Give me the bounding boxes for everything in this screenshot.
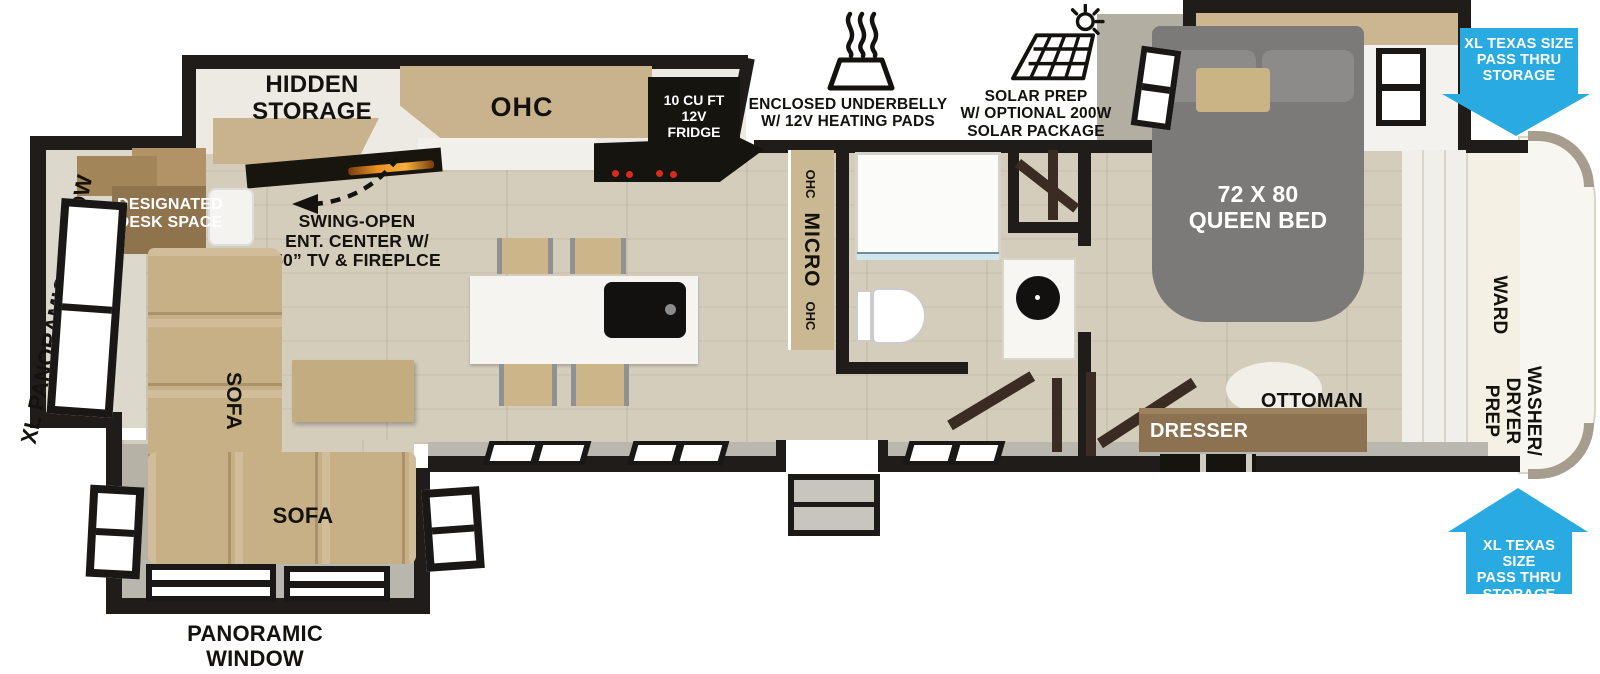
sofa-slide-window-right — [421, 486, 485, 572]
hall-door — [1052, 378, 1062, 452]
shower — [855, 152, 1001, 260]
sofa-slide-window-left — [86, 485, 145, 580]
rv-floorplan: 10 CU FT 12V FRIDGE OHC MICRO OHC HIDDEN… — [0, 0, 1600, 674]
front-cap-trim-top — [1528, 131, 1594, 187]
window-mullion — [1382, 84, 1420, 91]
b ottom-wall-window — [627, 441, 730, 465]
window-pane — [956, 445, 999, 461]
underbelly-label: ENCLOSED UNDERBELLY W/ 12V HEATING PADS — [748, 96, 948, 131]
window-pane — [909, 445, 952, 461]
window-pane — [539, 445, 584, 461]
coffee-table — [292, 360, 414, 422]
micro-cabinet-label: OHC MICRO OHC — [791, 150, 831, 350]
bar-stool — [497, 238, 553, 274]
panoramic-window-label: PANORAMIC WINDOW — [165, 622, 345, 671]
wall-bath-bottom — [836, 362, 968, 374]
ohc-label: OHC — [804, 170, 819, 199]
bedroom-steps — [1160, 454, 1256, 472]
pass-thru-label-bottom: XL TEXAS SIZE PASS THRU STORAGE — [1466, 538, 1572, 603]
wall-closet-horizontal — [1008, 222, 1091, 233]
entry-door-jamb-right — [878, 440, 888, 472]
bedroom-door — [1086, 372, 1096, 456]
pass-thru-label-top: XL TEXAS SIZE PASS THRU STORAGE — [1460, 36, 1578, 85]
window-pane — [490, 445, 535, 461]
bed-accent-pillow — [1196, 68, 1270, 112]
wardrobe-label: WARD — [1484, 265, 1510, 345]
window-pane — [680, 445, 723, 461]
sofa-label-horizontal: SOFA — [248, 504, 358, 529]
island-sink — [604, 282, 686, 338]
entry-door-jamb-left — [776, 440, 786, 472]
window-mullion — [152, 580, 270, 587]
bar-stool — [570, 238, 626, 274]
wall-top-right — [1466, 140, 1528, 153]
window-mullion — [62, 303, 112, 313]
dresser-label: DRESSER — [1150, 420, 1280, 442]
wardrobe-cabinet — [1402, 150, 1470, 456]
swing-open-label: SWING-OPEN ENT. CENTER W/ 50” TV & FIREP… — [262, 212, 452, 271]
sofa-slide-window-bottom — [146, 564, 276, 602]
heating-pads-icon — [818, 8, 904, 94]
entry-step-divider — [788, 502, 880, 507]
bar-stool — [499, 364, 557, 406]
window-mullion — [1142, 83, 1171, 94]
hidden-storage-label: HIDDEN STORAGE — [232, 72, 392, 126]
closet-door — [1048, 150, 1058, 220]
toilet-tank — [856, 290, 872, 342]
kitchen-ohc-label: OHC — [442, 92, 602, 122]
solar-prep-label: SOLAR PREP W/ OPTIONAL 200W SOLAR PACKAG… — [936, 88, 1136, 140]
bottom-wall-window — [483, 441, 592, 465]
bottom-wall-window — [903, 441, 1006, 465]
micro-label-text: MICRO — [799, 213, 823, 288]
toilet — [872, 288, 926, 344]
window-mullion — [432, 525, 474, 535]
window-pane — [633, 445, 676, 461]
pass-thru-arrowhead-top — [1442, 94, 1590, 136]
queen-bed-label: 72 X 80 QUEEN BED — [1152, 182, 1364, 234]
entry-door-opening — [786, 440, 878, 472]
wall-bed-slide-top — [1183, 0, 1468, 13]
bed-pillow — [1262, 50, 1354, 102]
wall-kitchen-slide-left — [182, 55, 196, 150]
bedroom-window-right — [1376, 48, 1426, 126]
pass-thru-arrowhead-bottom — [1448, 488, 1588, 532]
ohc-label: OHC — [804, 302, 819, 331]
sofa-label-vertical: SOFA — [219, 361, 245, 441]
swing-arrow-icon — [278, 148, 408, 220]
kitchen-counter — [418, 138, 596, 170]
washer-dryer-prep-label: WASHER/ DRYER PREP — [1481, 361, 1543, 461]
solar-prep-icon — [1000, 4, 1110, 92]
window-mullion — [96, 528, 134, 537]
sofa-chaise — [148, 248, 282, 460]
window-mullion — [290, 581, 384, 588]
refrigerator: 10 CU FT 12V FRIDGE — [648, 77, 740, 155]
wall-bath-left — [836, 150, 849, 374]
bar-stool — [571, 364, 629, 406]
sofa-slide-window-bottom — [284, 566, 390, 602]
vanity-sink — [1016, 276, 1060, 320]
shower-glass — [857, 252, 999, 260]
burner-knobs — [612, 170, 619, 177]
